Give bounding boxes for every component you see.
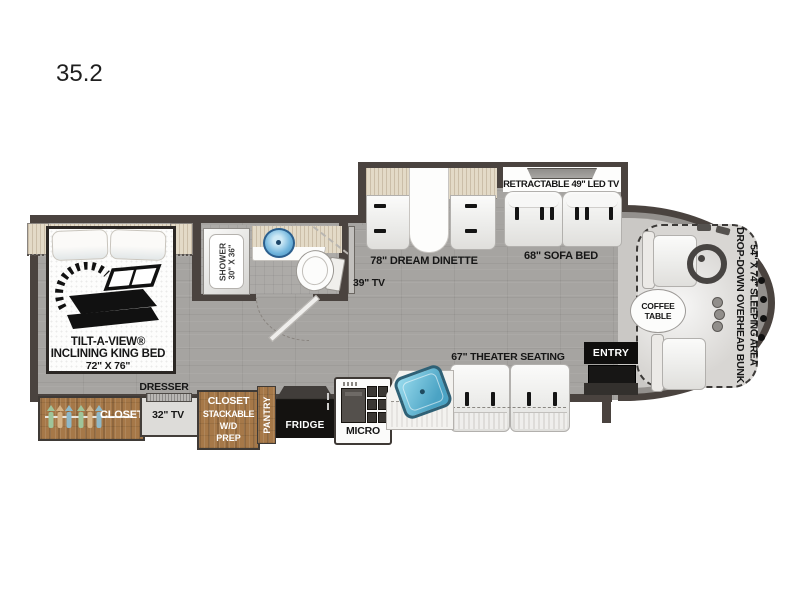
seatbelt-mark xyxy=(575,207,579,220)
page-title: 35.2 xyxy=(56,60,103,88)
theater-label: 67" THEATER SEATING xyxy=(447,351,569,363)
micro-cabinet: MICRO xyxy=(334,377,392,445)
cup-holder xyxy=(712,321,723,332)
sofa-label: 68" SOFA BED xyxy=(498,250,624,262)
bedroom-closet: CLOSET xyxy=(38,396,145,441)
seatbelt-mark xyxy=(609,207,613,220)
seatbelt-mark xyxy=(585,207,589,220)
tv-39-label: 39" TV xyxy=(353,277,385,289)
pillow xyxy=(109,229,166,261)
bed-slide-mark-left xyxy=(27,254,48,256)
retractable-tv-icon xyxy=(527,168,597,179)
front-marker-dot xyxy=(760,296,767,303)
front-marker-dot xyxy=(758,334,765,341)
armrest-mark xyxy=(491,392,495,406)
bed-label-line3: 72" X 76" xyxy=(48,360,168,372)
closet-label: CLOSET xyxy=(100,409,143,421)
sofa-bed-section xyxy=(562,191,622,247)
armrest-mark xyxy=(465,392,469,406)
slideout-left-wall xyxy=(358,162,366,223)
coffee-table: COFFEE TABLE xyxy=(630,289,686,333)
entry-step-stub xyxy=(602,395,611,423)
wd-label-3: W/D xyxy=(199,421,258,431)
dinette-table xyxy=(409,168,449,253)
pantry-label: PANTRY xyxy=(262,396,272,433)
cup-holder xyxy=(714,309,725,320)
bed-label-line2: INCLINING KING BED xyxy=(38,348,178,360)
micro-label: MICRO xyxy=(336,425,390,437)
toilet-icon xyxy=(293,246,348,296)
shower: SHOWER 30" X 36" xyxy=(203,228,250,295)
seatbelt-mark xyxy=(465,229,477,233)
armrest-mark xyxy=(553,392,557,406)
dresser-label: DRESSER xyxy=(133,381,195,393)
oven-icon xyxy=(341,388,366,423)
retractable-tv-label: RETRACTABLE 49" LED TV xyxy=(498,179,624,190)
floorplan-page: 35.2 SHOWER 30" X 36" xyxy=(0,0,800,600)
tv-32-label: 32" TV xyxy=(140,409,196,421)
vent-icon xyxy=(343,382,359,386)
seatbelt-mark xyxy=(550,207,554,220)
seatbelt-mark xyxy=(465,204,477,208)
entry-label: ENTRY xyxy=(593,347,629,359)
steering-wheel-icon xyxy=(687,244,727,284)
pantry: PANTRY xyxy=(257,386,276,444)
wd-label-2: STACKABLE xyxy=(199,409,258,419)
passenger-seat xyxy=(662,338,706,390)
wd-label-4: PREP xyxy=(199,433,258,443)
entry-step xyxy=(584,383,638,395)
seatbelt-mark xyxy=(374,204,386,208)
entry-step xyxy=(588,365,636,384)
coffee-table-label2: TABLE xyxy=(645,311,672,321)
bath-left-wall xyxy=(192,221,201,301)
fridge: FRIDGE xyxy=(276,386,334,438)
tv-32-icon xyxy=(146,393,192,402)
range-burners-icon xyxy=(367,386,387,423)
front-marker-dot xyxy=(758,277,765,284)
seatbelt-mark xyxy=(515,207,519,220)
wd-closet: CLOSET STACKABLE W/D PREP xyxy=(197,390,260,450)
theater-seat xyxy=(510,364,570,432)
bunk-label-line2: 54" X 74" SLEEPING AREA xyxy=(748,244,759,365)
wd-label-1: CLOSET xyxy=(199,395,258,407)
bunk-label-line1: DROP-DOWN OVERHEAD BUNK xyxy=(734,227,746,383)
seatbelt-mark xyxy=(374,229,386,233)
bath-bottom-wall-left xyxy=(192,294,256,301)
dash-vent xyxy=(697,224,711,231)
coffee-table-label1: COFFEE xyxy=(641,301,674,311)
theater-seat xyxy=(450,364,510,432)
bed-label-line1: TILT-A-VIEW® xyxy=(48,336,168,348)
shower-label: SHOWER 30" X 36" xyxy=(217,242,236,280)
tilt-a-view-bed-icon xyxy=(55,262,165,338)
entry-sign: ENTRY xyxy=(584,342,638,364)
pillow xyxy=(51,229,108,261)
seatbelt-mark xyxy=(540,207,544,220)
bath-sink-icon xyxy=(263,228,295,258)
armrest-mark xyxy=(527,392,531,406)
theater-slide-dashed-line xyxy=(452,407,566,408)
fridge-label: FRIDGE xyxy=(276,420,334,431)
sofa-bed-section xyxy=(504,191,563,247)
dinette-label: 78" DREAM DINETTE xyxy=(354,255,494,267)
cup-holder xyxy=(712,297,723,308)
clothes-hanger-icon xyxy=(64,402,74,432)
dinette-bench-left xyxy=(366,195,410,250)
front-marker-dot xyxy=(760,315,767,322)
